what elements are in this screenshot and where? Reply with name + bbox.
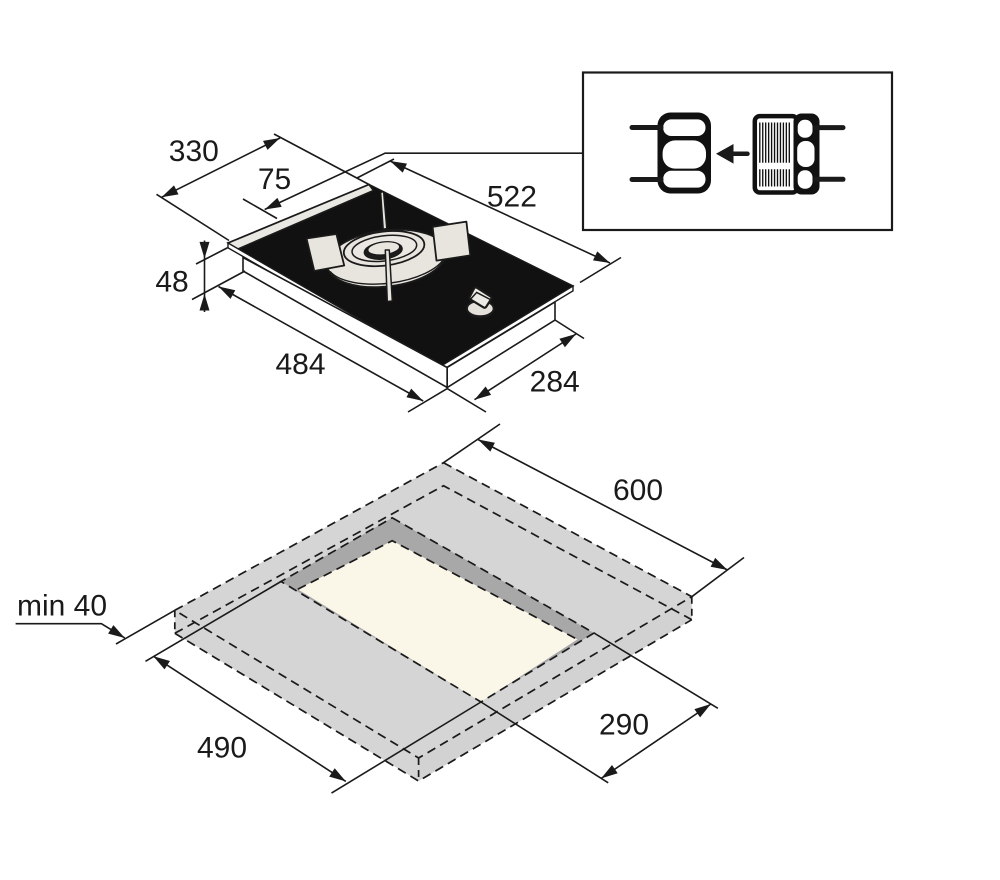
svg-text:284: 284 (530, 366, 580, 399)
svg-text:290: 290 (599, 709, 649, 742)
svg-text:484: 484 (275, 348, 325, 381)
svg-text:min 40: min 40 (17, 590, 107, 623)
svg-text:75: 75 (258, 163, 291, 196)
svg-text:48: 48 (155, 266, 188, 299)
svg-text:600: 600 (613, 474, 663, 507)
svg-text:490: 490 (197, 732, 247, 765)
svg-text:522: 522 (487, 181, 537, 214)
svg-text:330: 330 (169, 135, 219, 168)
